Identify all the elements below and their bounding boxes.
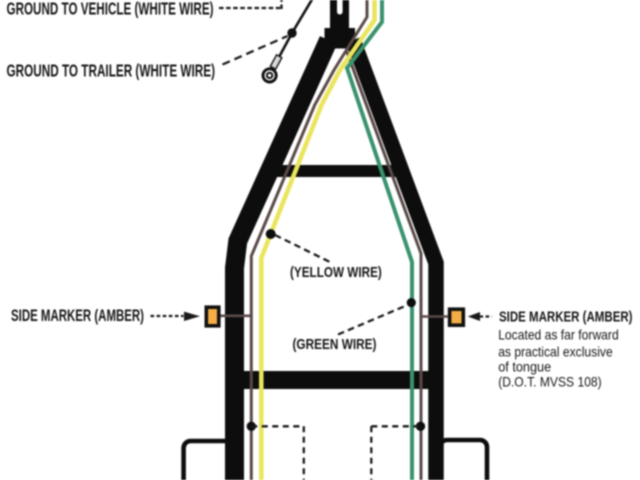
svg-text:as practical exclusive: as practical exclusive (498, 343, 613, 359)
svg-text:SIDE MARKER (AMBER): SIDE MARKER (AMBER) (11, 307, 144, 325)
svg-text:GROUND TO VEHICLE (WHITE WIRE): GROUND TO VEHICLE (WHITE WIRE) (7, 0, 214, 19)
svg-text:(GREEN WIRE): (GREEN WIRE) (293, 336, 377, 353)
svg-text:(D.O.T. MVSS 108): (D.O.T. MVSS 108) (498, 373, 602, 389)
svg-text:(YELLOW WIRE): (YELLOW WIRE) (290, 264, 382, 281)
svg-text:Located as far forward: Located as far forward (498, 327, 619, 343)
svg-text:SIDE MARKER (AMBER): SIDE MARKER (AMBER) (499, 309, 633, 326)
svg-text:of tongue: of tongue (498, 358, 551, 374)
svg-text:GROUND TO TRAILER (WHITE WIRE): GROUND TO TRAILER (WHITE WIRE) (7, 61, 216, 81)
